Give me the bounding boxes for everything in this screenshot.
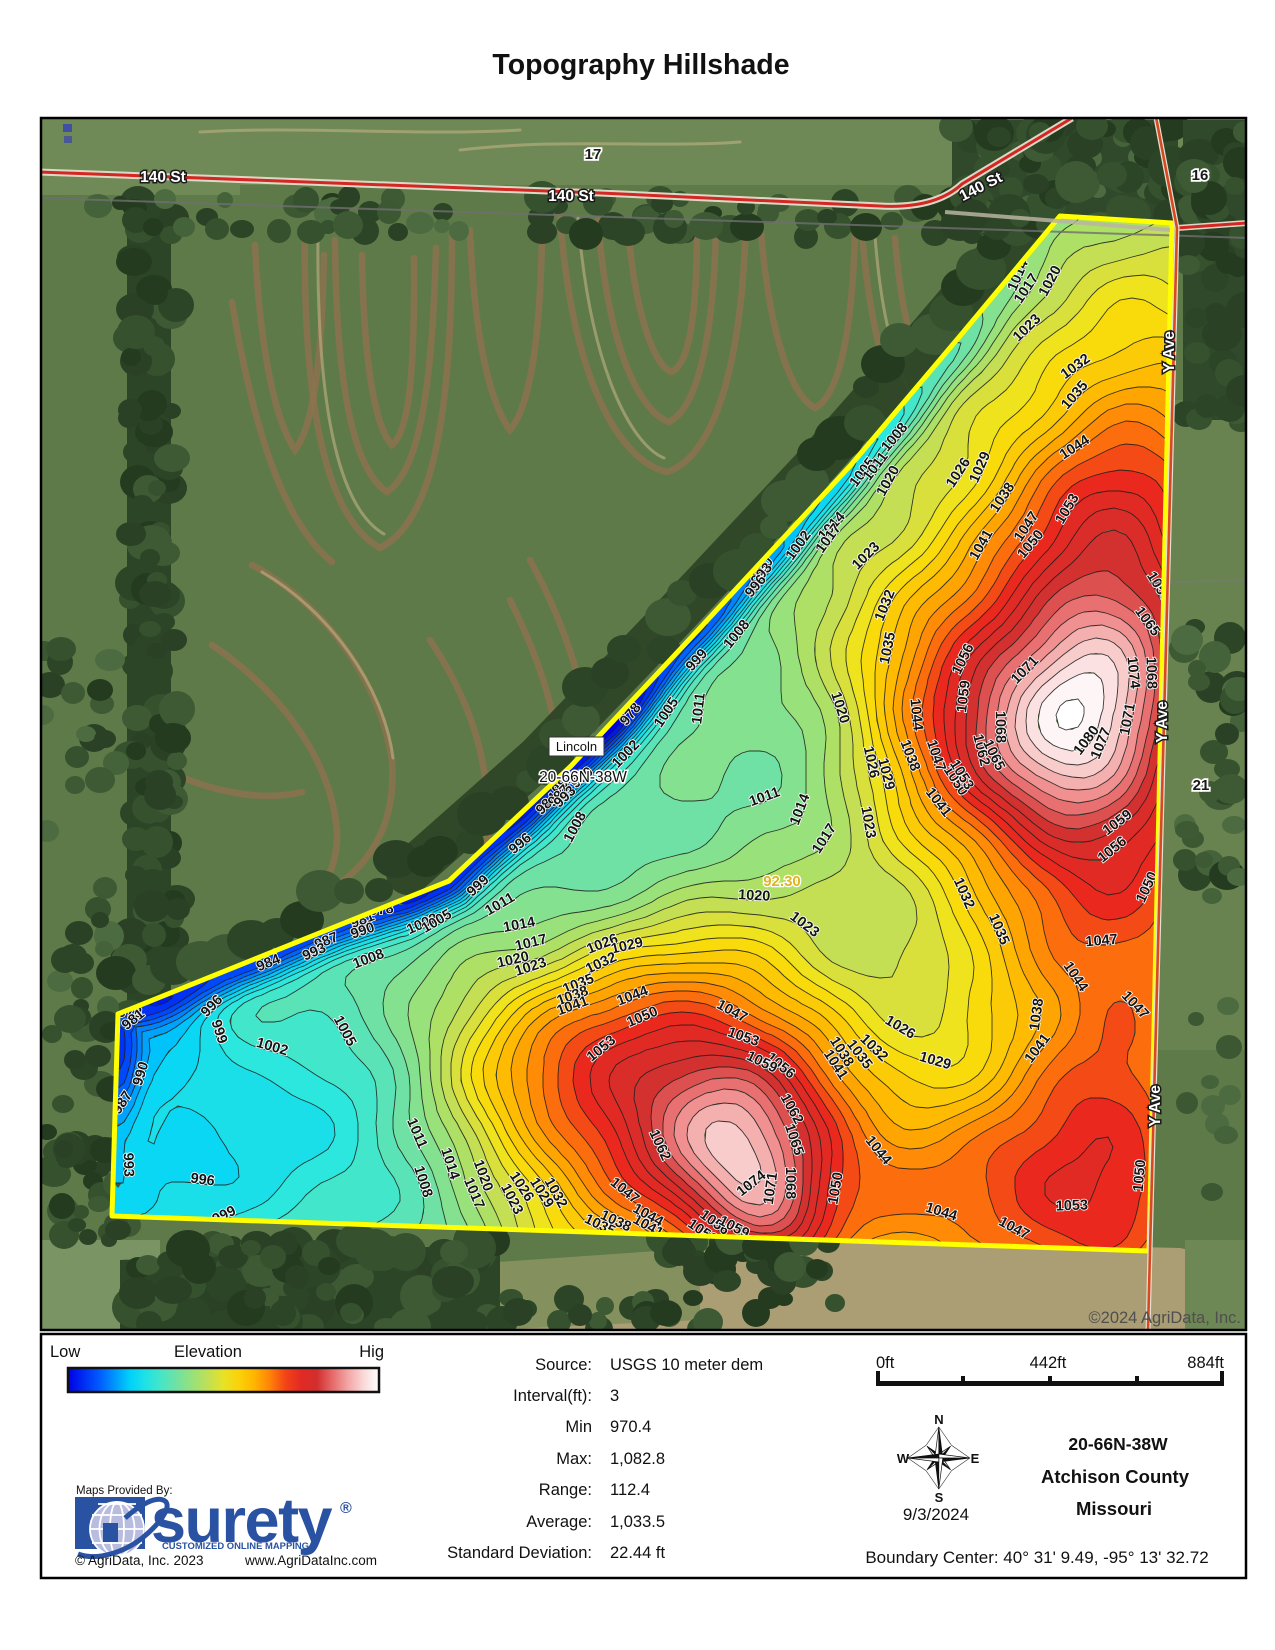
svg-text:3: 3: [610, 1387, 619, 1405]
svg-text:17: 17: [585, 146, 602, 163]
svg-text:20-66N-38W: 20-66N-38W: [539, 769, 627, 786]
svg-text:Atchison County: Atchison County: [1041, 1466, 1190, 1487]
svg-text:Range:: Range:: [539, 1481, 592, 1499]
svg-text:Elevation: Elevation: [174, 1343, 242, 1361]
svg-text:E: E: [971, 1451, 980, 1466]
svg-text:Hig: Hig: [359, 1343, 384, 1361]
svg-text:Y Ave: Y Ave: [1154, 701, 1171, 743]
svg-text:©2024 AgriData, Inc.: ©2024 AgriData, Inc.: [1089, 1309, 1242, 1327]
svg-text:W: W: [897, 1451, 910, 1466]
svg-text:22.44 ft: 22.44 ft: [610, 1544, 665, 1562]
svg-text:1,082.8: 1,082.8: [610, 1450, 665, 1468]
svg-text:1068: 1068: [782, 1167, 798, 1199]
svg-text:Y Ave: Y Ave: [1147, 1085, 1164, 1127]
svg-text:140 St: 140 St: [140, 169, 186, 186]
svg-text:Min: Min: [565, 1418, 592, 1436]
svg-text:N: N: [934, 1412, 943, 1427]
svg-text:Missouri: Missouri: [1076, 1498, 1152, 1519]
svg-text:Y Ave: Y Ave: [1161, 331, 1178, 373]
svg-text:92.30: 92.30: [763, 873, 801, 890]
svg-text:© AgriData, Inc. 2023: © AgriData, Inc. 2023: [75, 1553, 204, 1568]
svg-text:Standard Deviation:: Standard Deviation:: [447, 1544, 592, 1562]
svg-text:Boundary Center: 40° 31' 9.49,: Boundary Center: 40° 31' 9.49, -95° 13' …: [865, 1548, 1208, 1567]
svg-text:140 St: 140 St: [548, 188, 594, 205]
svg-text:®: ®: [340, 1500, 352, 1517]
svg-text:Topography Hillshade: Topography Hillshade: [492, 49, 789, 81]
svg-text:970.4: 970.4: [610, 1418, 651, 1436]
svg-text:www.AgriDataInc.com: www.AgriDataInc.com: [244, 1553, 377, 1568]
svg-text:9/3/2024: 9/3/2024: [903, 1505, 969, 1524]
svg-text:1047: 1047: [1085, 932, 1119, 951]
svg-text:884ft: 884ft: [1187, 1354, 1224, 1372]
svg-text:1068: 1068: [992, 711, 1009, 744]
svg-text:21: 21: [1193, 777, 1210, 794]
svg-text:CUSTOMIZED ONLINE MAPPING: CUSTOMIZED ONLINE MAPPING: [162, 1541, 309, 1552]
svg-text:112.4: 112.4: [610, 1481, 650, 1499]
svg-text:1053: 1053: [1055, 1197, 1088, 1214]
svg-text:Average:: Average:: [526, 1513, 592, 1531]
svg-text:993: 993: [120, 1152, 137, 1177]
svg-text:16: 16: [1192, 167, 1209, 184]
svg-text:1074: 1074: [1123, 656, 1142, 690]
svg-text:Lincoln: Lincoln: [556, 739, 597, 754]
svg-text:1044: 1044: [906, 698, 925, 732]
svg-text:Interval(ft):: Interval(ft):: [513, 1387, 592, 1405]
svg-text:Max:: Max:: [556, 1450, 592, 1468]
svg-text:442ft: 442ft: [1030, 1354, 1067, 1372]
svg-text:1068: 1068: [1142, 656, 1159, 689]
svg-text:996: 996: [189, 1170, 215, 1189]
svg-text:20-66N-38W: 20-66N-38W: [1068, 1434, 1168, 1454]
svg-text:Source:: Source:: [535, 1356, 592, 1374]
svg-text:Low: Low: [50, 1343, 80, 1361]
svg-text:0ft: 0ft: [876, 1354, 895, 1372]
svg-text:1,033.5: 1,033.5: [610, 1513, 665, 1531]
svg-text:S: S: [935, 1490, 944, 1505]
svg-text:1050: 1050: [1131, 1159, 1150, 1193]
svg-text:USGS 10 meter dem: USGS 10 meter dem: [610, 1356, 763, 1374]
